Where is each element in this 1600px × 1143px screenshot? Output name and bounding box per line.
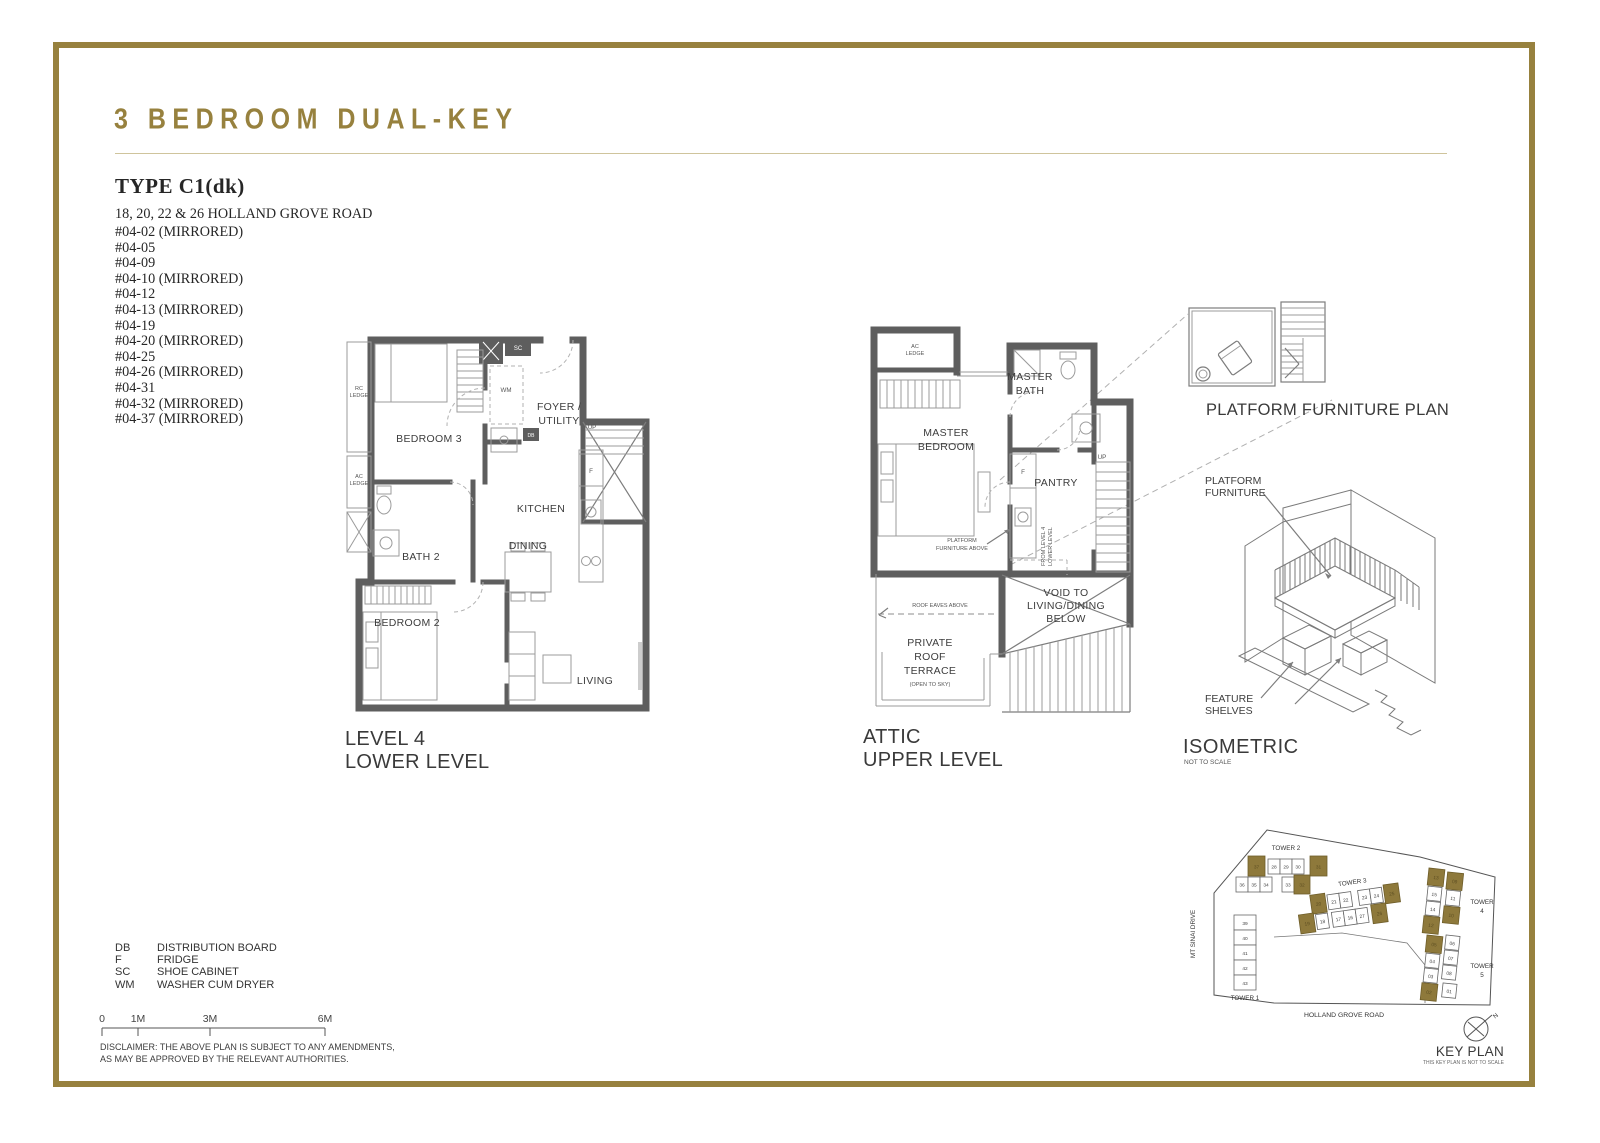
tower4-label: TOWER (1470, 899, 1494, 906)
svg-text:40: 40 (1242, 936, 1248, 942)
svg-text:BELOW: BELOW (1046, 613, 1085, 625)
terrace-label: PRIVATE (907, 637, 952, 649)
svg-text:33: 33 (1285, 883, 1291, 889)
svg-text:14: 14 (1430, 907, 1436, 914)
svg-text:03: 03 (1428, 974, 1434, 981)
svg-text:41: 41 (1242, 951, 1248, 957)
keyplan-unit: 36 (1236, 877, 1248, 892)
keyplan-unit: 26 (1371, 903, 1388, 924)
isometric-subtitle: NOT TO SCALE (1184, 759, 1232, 766)
svg-text:02: 02 (1426, 990, 1432, 997)
roof-eaves-label: ROOF EAVES ABOVE (912, 603, 968, 609)
pantry-label: PANTRY (1034, 477, 1077, 489)
platform-above-label: PLATFORM (947, 538, 977, 544)
sc-label: SC (514, 346, 523, 352)
keyplan-unit: 03 (1423, 968, 1438, 983)
keyplan-unit: 20 (1310, 893, 1327, 914)
bedroom2-label: BEDROOM 2 (374, 617, 440, 629)
attic-caption: ATTIC UPPER LEVEL (863, 726, 1003, 772)
keyplan-unit: 33 (1282, 877, 1294, 892)
tower1-label: TOWER 1 (1231, 995, 1260, 1002)
legend-row: FFRIDGE (115, 954, 277, 966)
tower-5: 05 04 03 02 06 07 08 01 (1420, 933, 1462, 1003)
keyplan-unit: 22 (1339, 892, 1353, 909)
svg-text:43: 43 (1242, 981, 1248, 987)
keyplan-unit: 24 (1369, 887, 1383, 904)
master-bath-label: MASTER (1007, 371, 1053, 383)
keyplan-unit: 11 (1445, 890, 1460, 906)
keyplan-unit: 35 (1248, 877, 1260, 892)
keyplan-unit: 32 (1294, 875, 1310, 894)
keyplan-unit: 30 (1292, 859, 1304, 874)
wm-label: WM (501, 387, 512, 394)
keyplan-unit: 02 (1420, 983, 1438, 1002)
fridge-label: F (1021, 469, 1025, 476)
svg-text:34: 34 (1263, 883, 1269, 889)
svg-text:TERRACE: TERRACE (904, 665, 956, 677)
svg-text:UTILITY: UTILITY (538, 415, 579, 427)
svg-text:1M: 1M (131, 1013, 146, 1025)
legend-row: WMWASHER CUM DRYER (115, 979, 277, 991)
keyplan-unit: 07 (1443, 950, 1458, 965)
svg-text:09: 09 (1452, 879, 1458, 886)
svg-text:LEDGE: LEDGE (906, 351, 925, 357)
svg-text:29: 29 (1283, 865, 1289, 871)
svg-text:10: 10 (1448, 913, 1454, 920)
keyplan-unit: 40 (1234, 930, 1256, 945)
svg-text:39: 39 (1242, 921, 1248, 927)
rc-ledge-label: RC (355, 386, 363, 392)
keyplan-unit: 39 (1234, 915, 1256, 930)
svg-text:35: 35 (1251, 883, 1257, 889)
attic-floorplan: AC LEDGE F UP FROM LEVEL 4 LOWER LEVEL (862, 322, 1137, 717)
keyplan-unit: 04 (1425, 953, 1440, 968)
svg-text:05: 05 (1431, 942, 1437, 949)
tower-3: TOWER 3 20 21 22 23 24 25 19 18 17 16 27… (1294, 873, 1403, 934)
foyer-label: FOYER / (537, 401, 581, 413)
keyplan-unit: 34 (1260, 877, 1272, 892)
isometric-title: ISOMETRIC (1183, 736, 1299, 758)
svg-text:FURNITURE ABOVE: FURNITURE ABOVE (936, 546, 988, 552)
keyplan-unit: 29 (1280, 859, 1292, 874)
keyplan-unit: 37 (1248, 856, 1265, 876)
svg-text:6M: 6M (318, 1013, 333, 1025)
svg-text:32: 32 (1299, 883, 1305, 889)
keyplan-subtitle: THIS KEY PLAN IS NOT TO SCALE (1423, 1060, 1505, 1066)
svg-text:ROOF: ROOF (914, 651, 946, 663)
svg-text:4: 4 (1480, 908, 1484, 915)
living-label: LIVING (577, 675, 613, 687)
keyplan-unit: 01 (1442, 983, 1457, 998)
legend-row: DBDISTRIBUTION BOARD (115, 942, 277, 954)
svg-text:LOWER LEVEL: LOWER LEVEL (1048, 527, 1054, 566)
svg-text:36: 36 (1239, 883, 1245, 889)
svg-text:LEDGE: LEDGE (350, 481, 369, 487)
dining-label: DINING (509, 540, 548, 552)
key-plan: 39 40 41 42 43 TOWER 1 TOWER 2 37 28 29 … (1182, 815, 1517, 1075)
svg-text:30: 30 (1295, 865, 1301, 871)
svg-text:13: 13 (1433, 875, 1439, 882)
svg-text:37: 37 (1254, 865, 1260, 871)
keyplan-unit: 31 (1310, 856, 1327, 876)
keyplan-unit: 06 (1445, 935, 1460, 950)
svg-text:BEDROOM: BEDROOM (918, 441, 974, 453)
ac-ledge-label: AC (355, 474, 363, 480)
tower2-label: TOWER 2 (1272, 845, 1301, 852)
svg-text:5: 5 (1480, 972, 1484, 979)
master-bedroom-label: MASTER (923, 427, 969, 439)
keyplan-unit: 28 (1268, 859, 1280, 874)
svg-text:15: 15 (1431, 892, 1437, 899)
svg-text:N: N (1492, 1012, 1500, 1021)
legend: DBDISTRIBUTION BOARD FFRIDGE SCSHOE CABI… (115, 942, 277, 991)
svg-text:06: 06 (1449, 941, 1455, 948)
north-compass-icon: N (1464, 1012, 1500, 1041)
keyplan-unit: 27 (1355, 907, 1369, 924)
svg-text:04: 04 (1429, 959, 1435, 966)
keyplan-unit: 08 (1442, 965, 1457, 980)
platform-plan-title: PLATFORM FURNITURE PLAN (1206, 401, 1449, 420)
svg-text:LIVING/DINING: LIVING/DINING (1027, 600, 1105, 612)
svg-text:3M: 3M (203, 1013, 218, 1025)
keyplan-unit: 18 (1315, 913, 1329, 930)
ac-ledge-label: AC (911, 344, 919, 350)
tower-2: TOWER 2 37 28 29 30 31 36 35 34 33 32 (1236, 845, 1327, 894)
void-label: VOID TO (1044, 587, 1089, 599)
platform-furniture-plan (1183, 298, 1335, 410)
bath2-label: BATH 2 (402, 551, 440, 563)
lower-level-floorplan: RC LEDGE AC LEDGE SC WM DB UP F (345, 330, 650, 715)
keyplan-unit: 09 (1446, 872, 1464, 891)
keyplan-unit: 41 (1234, 945, 1256, 960)
svg-text:BATH: BATH (1016, 385, 1044, 397)
svg-text:FROM LEVEL 4: FROM LEVEL 4 (1041, 527, 1047, 566)
legend-row: SCSHOE CABINET (115, 966, 277, 978)
platform-furniture-label: PLATFORM (1205, 475, 1261, 487)
keyplan-unit: 14 (1425, 901, 1440, 916)
lower-level-caption: LEVEL 4 LOWER LEVEL (345, 728, 489, 774)
up-label: UP (1098, 454, 1107, 461)
keyplan-unit: 19 (1298, 913, 1315, 934)
tower-4: 13 15 14 12 09 11 10 (1422, 868, 1464, 936)
floorplan-page: 3 BEDROOM DUAL-KEY TYPE C1(dk) 18, 20, 2… (0, 0, 1600, 1143)
keyplan-unit: 42 (1234, 960, 1256, 975)
holland-grove-road-label: HOLLAND GROVE ROAD (1304, 1012, 1384, 1019)
svg-text:07: 07 (1448, 956, 1454, 963)
from-level-label: FROM LEVEL 4 LOWER LEVEL (1041, 527, 1054, 566)
tower5-label: TOWER (1470, 963, 1494, 970)
isometric-drawing: PLATFORM FURNITURE FEATURE SHELVES ISOME… (1183, 448, 1473, 778)
svg-text:(OPEN TO SKY): (OPEN TO SKY) (910, 682, 951, 688)
disclaimer: DISCLAIMER: THE ABOVE PLAN IS SUBJECT TO… (100, 1042, 395, 1065)
scale-bar: 0 1M 3M 6M (98, 1013, 338, 1041)
fridge-label: F (589, 468, 593, 475)
svg-text:01: 01 (1446, 989, 1452, 996)
keyplan-unit: 13 (1427, 868, 1445, 887)
svg-text:0: 0 (99, 1013, 105, 1025)
keyplan-unit: 12 (1422, 916, 1440, 935)
keyplan-unit: 15 (1427, 886, 1442, 901)
svg-text:31: 31 (1316, 865, 1322, 871)
svg-text:12: 12 (1428, 923, 1434, 930)
svg-text:11: 11 (1450, 896, 1456, 903)
svg-text:SHELVES: SHELVES (1205, 705, 1253, 717)
bedroom3-label: BEDROOM 3 (396, 433, 462, 445)
db-label: DB (528, 433, 536, 439)
svg-text:08: 08 (1446, 971, 1452, 978)
tower-1: 39 40 41 42 43 TOWER 1 (1231, 915, 1260, 1002)
feature-shelves-label: FEATURE (1205, 693, 1253, 705)
svg-text:LEDGE: LEDGE (350, 393, 369, 399)
svg-text:28: 28 (1271, 865, 1277, 871)
mt-sinai-drive-label: MT SINAI DRIVE (1190, 910, 1197, 958)
keyplan-title: KEY PLAN (1436, 1044, 1504, 1059)
keyplan-unit: 25 (1383, 883, 1400, 904)
kitchen-label: KITCHEN (517, 503, 565, 515)
keyplan-unit: 05 (1425, 935, 1443, 954)
svg-text:42: 42 (1242, 966, 1248, 972)
keyplan-unit: 10 (1442, 906, 1460, 925)
keyplan-unit: 43 (1234, 975, 1256, 990)
svg-text:FURNITURE: FURNITURE (1205, 487, 1266, 499)
tower3-label: TOWER 3 (1338, 877, 1368, 888)
up-label: UP (588, 424, 597, 431)
